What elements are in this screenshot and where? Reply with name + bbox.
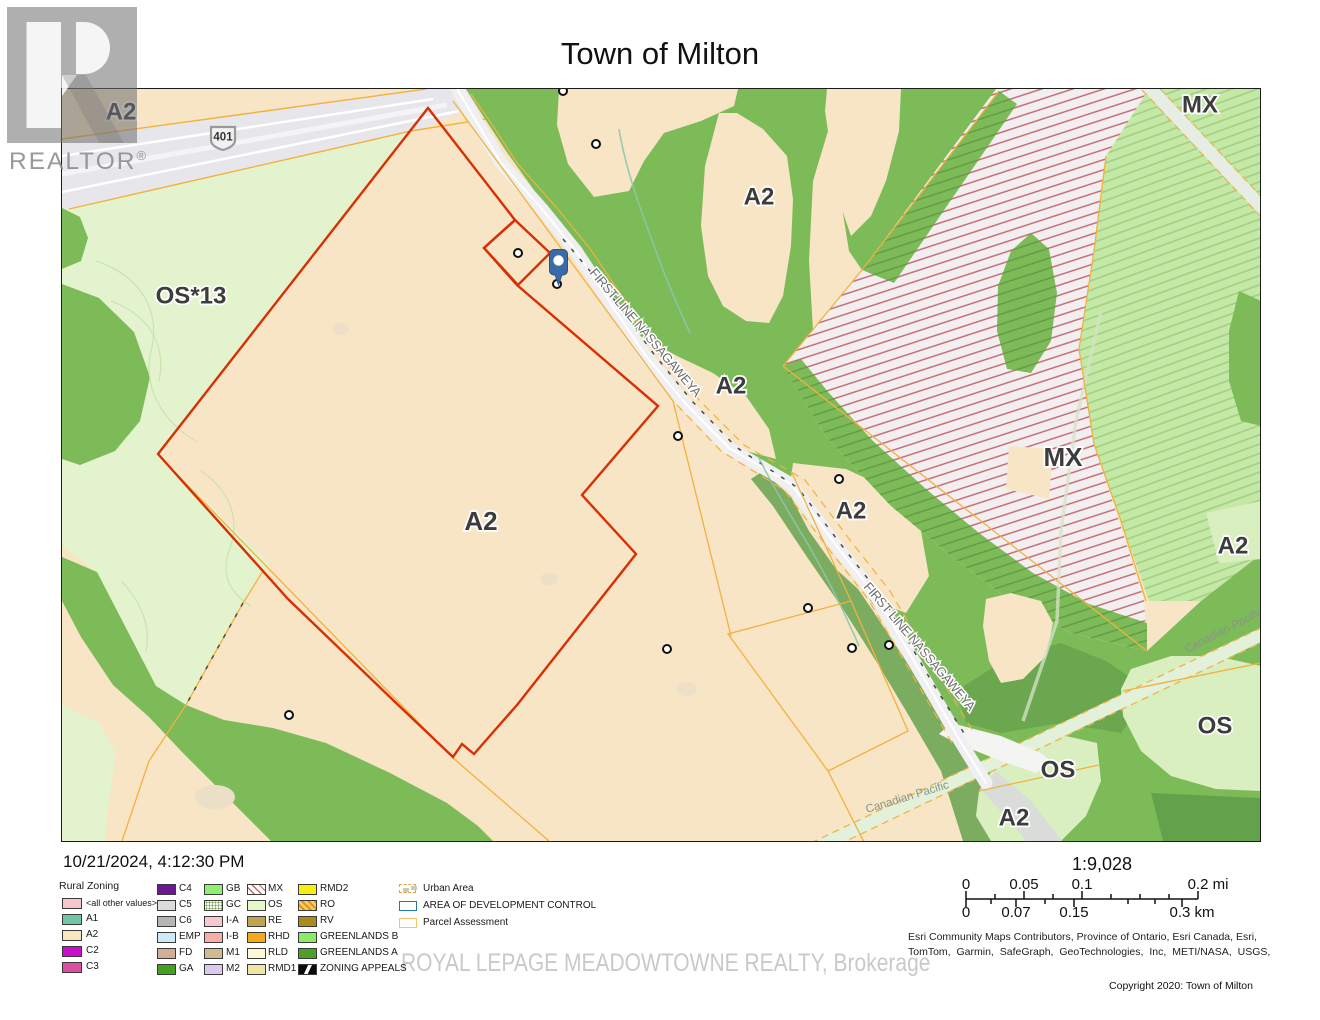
- svg-text:A2: A2: [464, 506, 497, 536]
- svg-text:0: 0: [962, 904, 970, 921]
- svg-text:A2: A2: [1218, 532, 1249, 559]
- svg-text:0.2 mi: 0.2 mi: [1188, 876, 1229, 893]
- svg-text:0.15: 0.15: [1059, 904, 1088, 921]
- svg-text:A2: A2: [744, 183, 775, 210]
- svg-text:0.3 km: 0.3 km: [1169, 904, 1214, 921]
- svg-text:A2: A2: [999, 804, 1030, 831]
- svg-text:1:9,028: 1:9,028: [1072, 854, 1132, 874]
- svg-text:MX: MX: [1182, 91, 1218, 118]
- svg-text:OS: OS: [1041, 756, 1076, 783]
- svg-text:0.07: 0.07: [1001, 904, 1030, 921]
- svg-text:OS: OS: [1198, 712, 1233, 739]
- svg-text:A2: A2: [716, 372, 747, 399]
- svg-text:0.05: 0.05: [1009, 876, 1038, 893]
- svg-text:OS*13: OS*13: [156, 282, 227, 309]
- svg-text:MX: MX: [1044, 442, 1084, 472]
- svg-text:401: 401: [213, 132, 233, 144]
- svg-text:A2: A2: [836, 497, 867, 524]
- svg-text:0: 0: [962, 876, 970, 893]
- svg-text:0.1: 0.1: [1072, 876, 1093, 893]
